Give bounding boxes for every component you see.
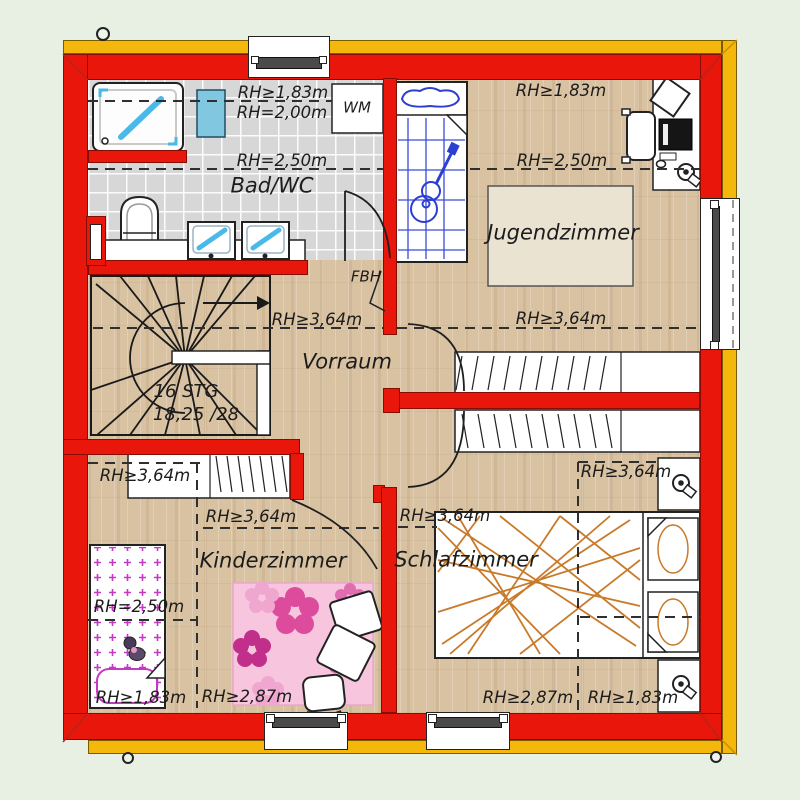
label-bad-rh-183: RH≥1,83m xyxy=(238,85,329,102)
window-nub xyxy=(428,714,437,723)
label-schlaf-rh-183: RH≥1,83m xyxy=(588,690,679,707)
label-vorraum-rh-364: RH≥3,64m xyxy=(272,312,363,329)
label-jugend-rh-364: RH≥3,64m xyxy=(516,311,607,328)
label-jugend-rh-183: RH≥1,83m xyxy=(516,83,607,100)
label-kinder-rh-287: RH≥2,87m xyxy=(202,689,293,706)
wall-bath-south xyxy=(88,260,308,275)
wall-kinder-schlaf-partition xyxy=(381,487,397,713)
wall-niche-opening xyxy=(90,224,102,260)
label-jugend-rh-250: RH=2,50m xyxy=(517,153,608,170)
label-schlaf-rh-287: RH≥2,87m xyxy=(483,690,574,707)
label-kinder-rh-183: RH≥1,83m xyxy=(96,690,187,707)
room-name-vorraum: Vorraum xyxy=(302,352,392,373)
exterior-wall-bottom xyxy=(63,713,722,740)
exterior-wall-top xyxy=(63,54,722,80)
window-nub xyxy=(499,714,508,723)
wall-jugend-west xyxy=(383,78,397,335)
label-kinder-rh-364-b: RH≥3,64m xyxy=(206,509,297,526)
wall-stairs-south xyxy=(63,439,300,455)
window-nub xyxy=(266,714,275,723)
window-sill xyxy=(272,717,340,728)
label-kinder-rh-250: RH=2,50m xyxy=(94,599,185,616)
window-sill xyxy=(256,57,322,69)
room-name-kinderzimmer: Kinderzimmer xyxy=(199,551,346,572)
wall-shower-ledge xyxy=(88,150,187,163)
insulation-band-bottom xyxy=(88,740,722,754)
label-schlaf-rh-364-a: RH≥3,64m xyxy=(400,508,491,525)
room-name-bad-wc: Bad/WC xyxy=(230,176,313,197)
label-fbh: FBH xyxy=(351,270,381,285)
bathroom-tile-floor xyxy=(88,78,383,260)
exterior-wall-right xyxy=(700,54,722,740)
exterior-wall-left xyxy=(63,54,88,740)
wall-jugend-schlaf-divider xyxy=(385,392,700,409)
room-name-jugendzimmer: Jugendzimmer xyxy=(487,223,639,244)
window-sill xyxy=(712,206,720,342)
room-name-schlafzimmer: Schlafzimmer xyxy=(394,550,538,571)
label-bad-rh-200: RH=2,00m xyxy=(237,105,328,122)
label-kinder-rh-364-a: RH≥3,64m xyxy=(100,468,191,485)
window-nub xyxy=(337,714,346,723)
label-bad-rh-250: RH=2,50m xyxy=(237,153,328,170)
wall-divider-cap xyxy=(383,388,400,413)
window-nub xyxy=(710,341,719,350)
label-wm: WM xyxy=(343,101,371,116)
window-nub xyxy=(319,56,327,64)
label-schlaf-rh-364-b: RH≥3,64m xyxy=(581,464,672,481)
window-sill xyxy=(434,717,502,728)
window-nub xyxy=(710,200,719,209)
insulation-band-top xyxy=(63,40,722,54)
floor-plan: RH≥1,83m RH=2,00m RH=2,50m Bad/WC RH≥1,8… xyxy=(0,0,800,800)
label-stair-steps: 16 STG xyxy=(154,383,219,401)
insulation-band-right xyxy=(722,40,737,754)
window-right xyxy=(700,198,740,350)
label-stair-rise-run: 18,25 /28 xyxy=(153,406,239,424)
wall-stub-kinder xyxy=(290,453,304,500)
window-nub xyxy=(251,56,259,64)
